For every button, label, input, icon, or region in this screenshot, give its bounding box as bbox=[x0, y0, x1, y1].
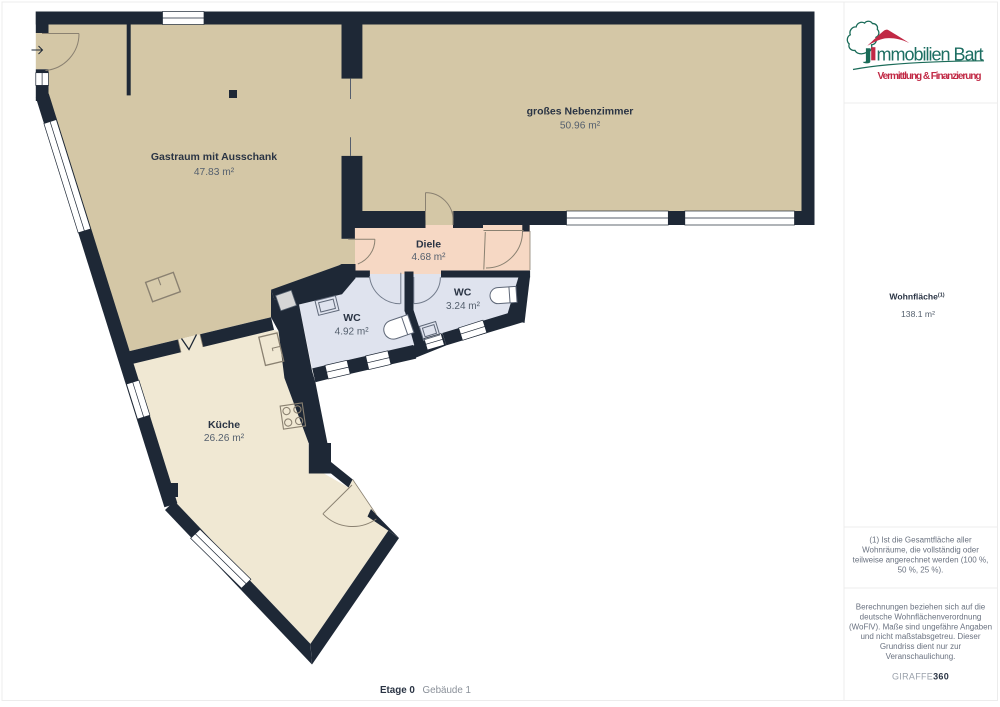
svg-text:und nicht maßstabsgetreu. Dies: und nicht maßstabsgetreu. Dieser bbox=[860, 632, 980, 641]
svg-text:47.83 m²: 47.83 m² bbox=[194, 167, 235, 178]
svg-text:Veranschaulichung.: Veranschaulichung. bbox=[886, 652, 956, 661]
svg-text:Wohnräume, die vollständig ode: Wohnräume, die vollständig oder bbox=[862, 546, 979, 555]
svg-text:Berechnungen beziehen sich auf: Berechnungen beziehen sich auf die bbox=[856, 603, 986, 612]
svg-text:Etage 0: Etage 0 bbox=[380, 685, 415, 696]
svg-text:großes Nebenzimmer: großes Nebenzimmer bbox=[527, 105, 634, 117]
svg-text:3.24 m²: 3.24 m² bbox=[446, 301, 481, 312]
svg-text:Grundriss dient nur zur: Grundriss dient nur zur bbox=[880, 642, 962, 651]
svg-text:WC: WC bbox=[343, 312, 361, 324]
svg-text:GIRAFFE360: GIRAFFE360 bbox=[892, 672, 949, 682]
svg-text:138.1 m²: 138.1 m² bbox=[901, 309, 935, 319]
svg-text:(1) Ist die Gesamtfläche aller: (1) Ist die Gesamtfläche aller bbox=[869, 536, 972, 545]
svg-text:4.92 m²: 4.92 m² bbox=[335, 327, 370, 338]
svg-text:Wohnfläche(1): Wohnfläche(1) bbox=[889, 292, 944, 302]
svg-text:(WoFlV). Maße sind ungefähre A: (WoFlV). Maße sind ungefähre Angaben bbox=[849, 622, 992, 631]
svg-text:WC: WC bbox=[454, 287, 472, 299]
svg-text:Diele: Diele bbox=[416, 239, 441, 251]
svg-text:Gastraum mit Ausschank: Gastraum mit Ausschank bbox=[151, 151, 277, 163]
svg-text:26.26 m²: 26.26 m² bbox=[204, 433, 245, 444]
svg-text:Gebäude 1: Gebäude 1 bbox=[423, 685, 471, 696]
svg-text:Vermittlung & Finanzierung: Vermittlung & Finanzierung bbox=[878, 71, 982, 82]
svg-text:50 %, 25 %).: 50 %, 25 %). bbox=[898, 566, 944, 575]
svg-text:Küche: Küche bbox=[208, 419, 240, 431]
svg-text:deutsche Wohnflächenverordnung: deutsche Wohnflächenverordnung bbox=[860, 612, 982, 621]
svg-text:teilweise angerechnet werden (: teilweise angerechnet werden (100 %, bbox=[853, 556, 989, 565]
svg-text:4.68 m²: 4.68 m² bbox=[412, 252, 447, 263]
svg-text:50.96 m²: 50.96 m² bbox=[560, 120, 601, 131]
